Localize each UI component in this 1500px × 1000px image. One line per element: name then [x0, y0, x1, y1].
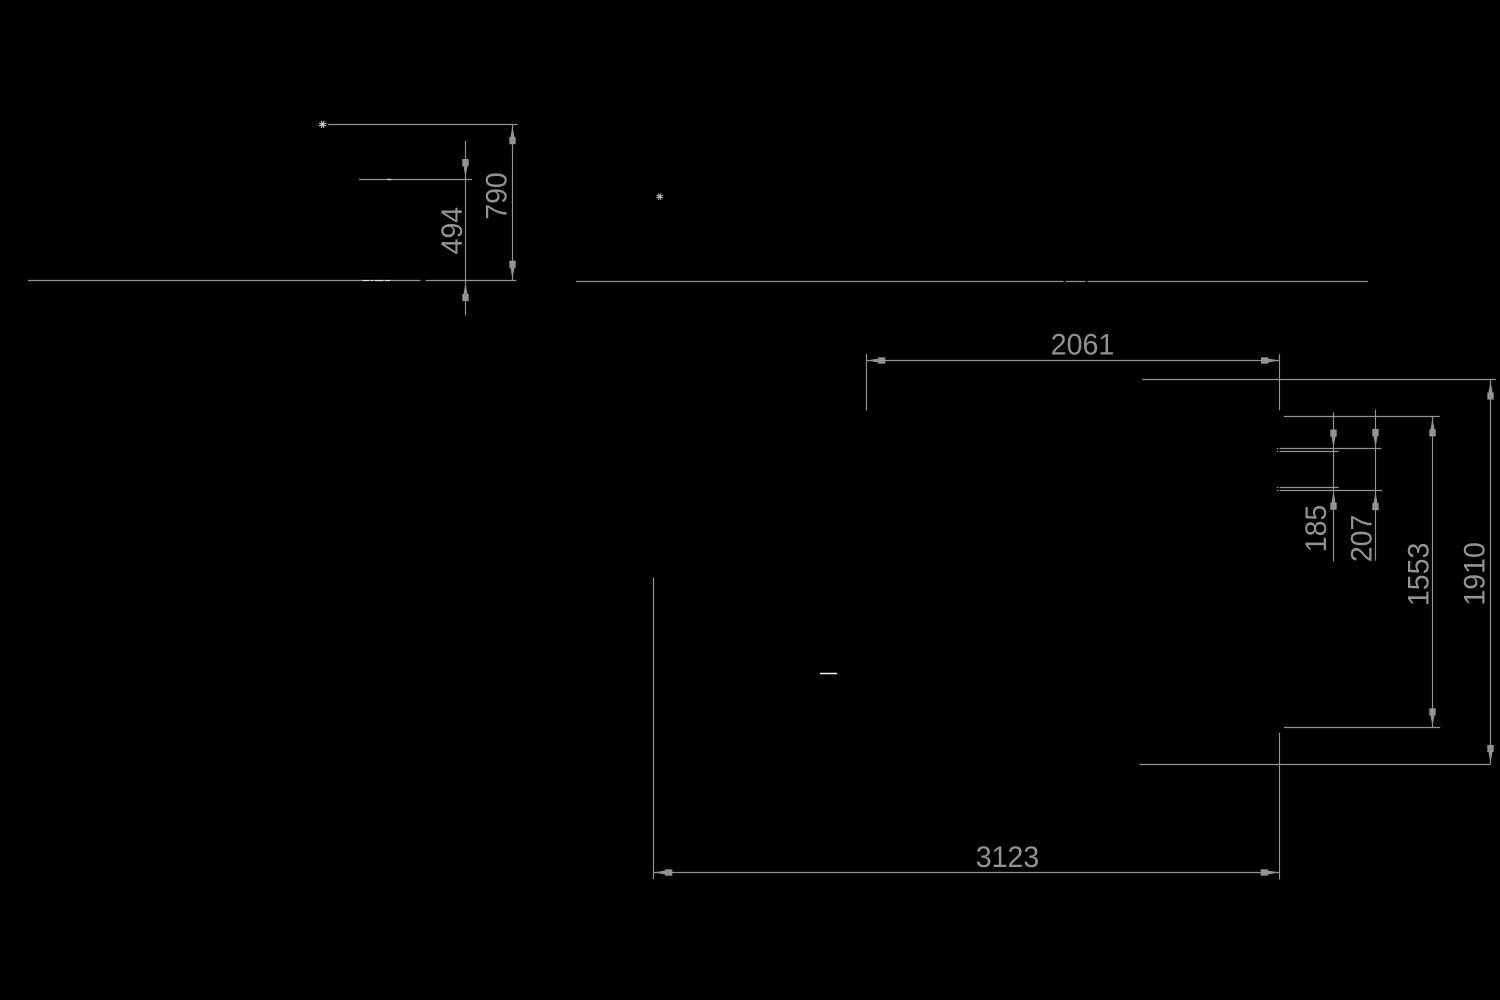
svg-text:1553: 1553	[1403, 543, 1436, 607]
svg-text:1910: 1910	[1458, 542, 1491, 606]
svg-text:3123: 3123	[976, 841, 1040, 874]
svg-text:2061: 2061	[1051, 328, 1115, 361]
svg-text:790: 790	[481, 172, 514, 220]
svg-text:185: 185	[1300, 505, 1333, 553]
svg-text:207: 207	[1345, 515, 1378, 563]
svg-text:494: 494	[436, 207, 469, 255]
